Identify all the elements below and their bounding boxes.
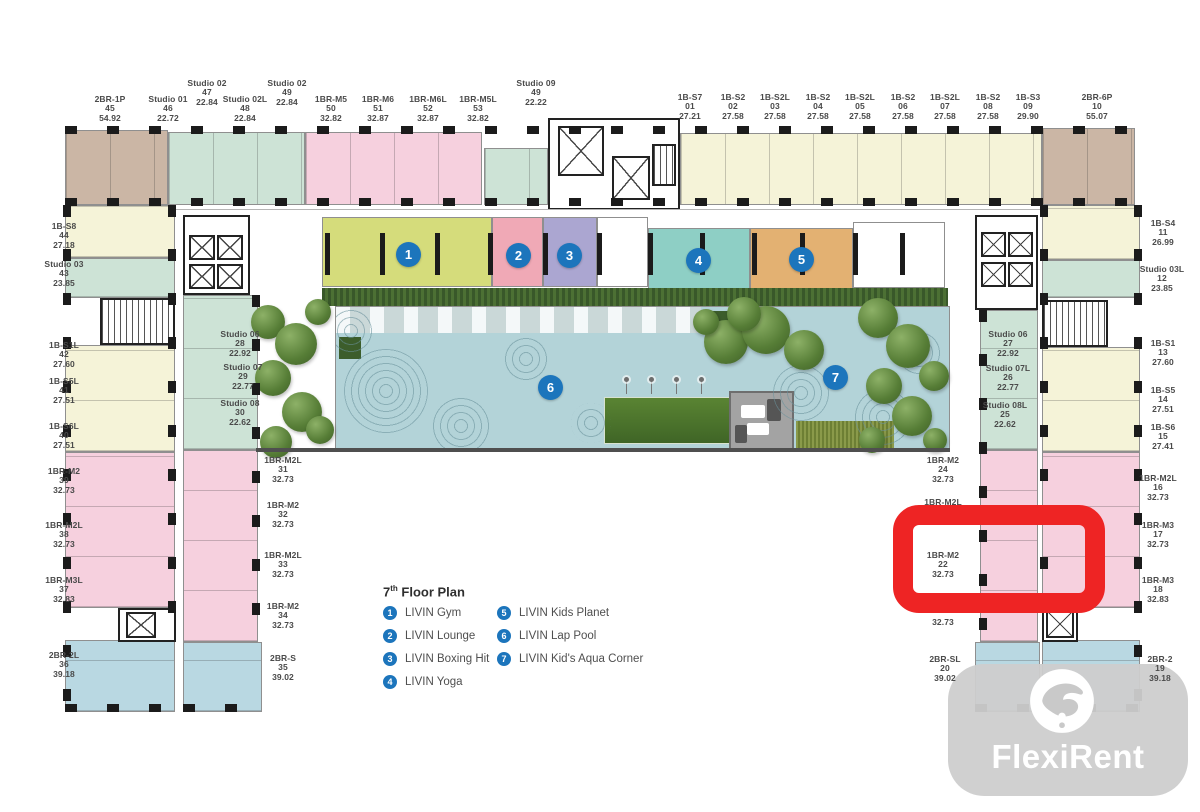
water-ripple bbox=[571, 403, 611, 443]
unit-label-49: Studio 02 49 22.84 bbox=[267, 79, 306, 107]
legend-label: LIVIN Kid's Aqua Corner bbox=[519, 653, 643, 665]
legend-label: LIVIN Lap Pool bbox=[519, 630, 596, 642]
lamp-post bbox=[626, 381, 627, 394]
legend-item-3: 3LIVIN Boxing Hit bbox=[383, 652, 489, 666]
unit-label-25: Studio 08L 25 22.62 bbox=[983, 401, 1027, 429]
lamp-post bbox=[701, 381, 702, 394]
unit-block-studio-09 bbox=[484, 148, 548, 205]
deck-sofa bbox=[735, 425, 747, 443]
unit-label-17: 1BR-M3 17 32.73 bbox=[1142, 521, 1174, 549]
legend-title-text: Floor Plan bbox=[398, 584, 465, 599]
unit-label-31: 1BR-M2L 31 32.73 bbox=[264, 456, 302, 484]
legend-marker-7: 7 bbox=[497, 652, 511, 666]
legend-label: LIVIN Gym bbox=[405, 607, 461, 619]
unit-block-1br-inner-left bbox=[183, 450, 258, 642]
column-row bbox=[65, 126, 1135, 134]
unit-label-49: Studio 09 49 22.22 bbox=[516, 79, 555, 107]
unit-block-2br-6p bbox=[1042, 128, 1135, 205]
unit-label-20: 2BR-SL 20 39.02 bbox=[929, 655, 960, 683]
legend-item-1: 1LIVIN Gym bbox=[383, 606, 461, 620]
unit-label-30: Studio 08 30 22.62 bbox=[220, 399, 259, 427]
unit-label-33: 1BR-M2L 33 32.73 bbox=[264, 551, 302, 579]
room-services bbox=[853, 222, 945, 288]
legend-item-5: 5LIVIN Kids Planet bbox=[497, 606, 609, 620]
unit-label-27: Studio 06 27 22.92 bbox=[988, 330, 1027, 358]
legend-label: LIVIN Lounge bbox=[405, 630, 475, 642]
column bbox=[597, 233, 602, 275]
unit-label-15: 1B-S6 15 27.41 bbox=[1151, 423, 1176, 451]
elevator-shaft bbox=[217, 235, 243, 260]
unit-label-29: Studio 07 29 22.77 bbox=[223, 363, 262, 391]
unit-label-04: 1B-S2 04 27.58 bbox=[806, 93, 831, 121]
flexirent-logo-icon bbox=[1029, 668, 1095, 734]
lamp-post bbox=[651, 381, 652, 394]
unit-label-43: Studio 03 43 23.85 bbox=[44, 260, 83, 288]
tree bbox=[784, 330, 824, 370]
unit-label-partial: 32.73 bbox=[932, 618, 954, 627]
unit-label-28: Studio 06 28 22.92 bbox=[220, 330, 259, 358]
unit-label-13: 1B-S1 13 27.60 bbox=[1151, 339, 1176, 367]
legend-marker-2: 2 bbox=[383, 629, 397, 643]
column bbox=[853, 233, 858, 275]
legend-label: LIVIN Kids Planet bbox=[519, 607, 609, 619]
unit-label-34: 1BR-M2 34 32.73 bbox=[267, 602, 299, 630]
unit-label-42: 1B-S1L 42 27.60 bbox=[49, 341, 79, 369]
lap-pool bbox=[335, 306, 950, 450]
unit-label-11: 1B-S4 11 26.99 bbox=[1151, 219, 1176, 247]
tree bbox=[260, 426, 292, 458]
legend-item-4: 4LIVIN Yoga bbox=[383, 675, 463, 689]
pool-deck-steps bbox=[336, 307, 701, 333]
unit-label-12: Studio 03L 12 23.85 bbox=[1140, 265, 1184, 293]
column bbox=[325, 233, 330, 275]
deck-sofa bbox=[741, 405, 765, 418]
unit-block-1bs-left bbox=[65, 345, 175, 452]
deck-table bbox=[747, 423, 769, 435]
unit-label-44: 1B-S8 44 27.18 bbox=[52, 222, 77, 250]
water-ripple bbox=[344, 349, 428, 433]
legend-marker-5: 5 bbox=[497, 606, 511, 620]
brand-name: FlexiRent bbox=[948, 738, 1188, 776]
elevator-shaft bbox=[189, 235, 215, 260]
amenity-marker-1: 1 bbox=[396, 242, 421, 267]
tree bbox=[693, 309, 719, 335]
unit-label-07: 1B-S2L 07 27.58 bbox=[930, 93, 960, 121]
amenity-marker-6: 6 bbox=[538, 375, 563, 400]
stairs-left-wing bbox=[100, 298, 175, 345]
legend-label: LIVIN Boxing Hit bbox=[405, 653, 489, 665]
elevator-shaft bbox=[1008, 232, 1033, 257]
amenity-marker-5: 5 bbox=[789, 247, 814, 272]
legend-marker-6: 6 bbox=[497, 629, 511, 643]
unit-label-38: 1BR-M2L 38 32.73 bbox=[45, 521, 83, 549]
legend-marker-3: 3 bbox=[383, 652, 397, 666]
tree bbox=[886, 324, 930, 368]
lamp bbox=[699, 377, 704, 382]
unit-block-1b-s8 bbox=[65, 205, 175, 258]
unit-block-1bs-top bbox=[680, 133, 1042, 205]
lawn bbox=[604, 397, 730, 444]
elevator-shaft bbox=[612, 156, 650, 200]
highlight-box-unit-22 bbox=[893, 505, 1105, 613]
unit-label-32: 1BR-M2 32 32.73 bbox=[267, 501, 299, 529]
lamp-post bbox=[676, 381, 677, 394]
water-ripple bbox=[335, 309, 373, 353]
elevator-shaft bbox=[981, 262, 1006, 287]
legend-item-2: 2LIVIN Lounge bbox=[383, 629, 475, 643]
unit-label-41: 1B-S5L 41 27.51 bbox=[49, 377, 79, 405]
watermark-badge: FlexiRent bbox=[948, 664, 1188, 796]
lamp bbox=[624, 377, 629, 382]
unit-label-19: 2BR-2 19 39.18 bbox=[1147, 655, 1172, 683]
legend-marker-1: 1 bbox=[383, 606, 397, 620]
tree bbox=[866, 368, 902, 404]
elevator-shaft bbox=[189, 264, 215, 289]
elevator-shaft bbox=[981, 232, 1006, 257]
column bbox=[900, 233, 905, 275]
unit-label-05: 1B-S2L 05 27.58 bbox=[845, 93, 875, 121]
elevator-shaft bbox=[1008, 262, 1033, 287]
unit-label-02: 1B-S2 02 27.58 bbox=[721, 93, 746, 121]
floor-plan: 1234567 2BR-1P 45 54.92Studio 01 46 22.7… bbox=[0, 0, 1200, 812]
unit-label-46: Studio 01 46 22.72 bbox=[148, 95, 187, 123]
column-row bbox=[65, 704, 175, 712]
unit-label-37: 1BR-M3L 37 32.83 bbox=[45, 576, 83, 604]
elevator-shaft bbox=[126, 612, 156, 638]
column bbox=[488, 233, 493, 275]
legend-label: LIVIN Yoga bbox=[405, 676, 463, 688]
unit-label-01: 1B-S7 01 27.21 bbox=[678, 93, 703, 121]
corridor-line bbox=[176, 209, 1040, 210]
unit-block-1bs-right bbox=[1042, 347, 1140, 452]
hedge-strip bbox=[322, 288, 948, 306]
unit-label-08: 1B-S2 08 27.58 bbox=[976, 93, 1001, 121]
column bbox=[752, 233, 757, 275]
unit-label-06: 1B-S2 06 27.58 bbox=[891, 93, 916, 121]
unit-label-40: 1B-S6L 40 27.51 bbox=[49, 422, 79, 450]
unit-label-51: 1BR-M6 51 32.87 bbox=[362, 95, 394, 123]
unit-block-1b-s4 bbox=[1042, 205, 1140, 260]
unit-block-2br-2l bbox=[65, 640, 175, 712]
unit-label-14: 1B-S5 14 27.51 bbox=[1151, 386, 1176, 414]
lamp bbox=[649, 377, 654, 382]
unit-label-35: 2BR-S 35 39.02 bbox=[270, 654, 296, 682]
unit-block-2br-s bbox=[183, 642, 262, 712]
tree bbox=[275, 323, 317, 365]
unit-label-50: 1BR-M5 50 32.82 bbox=[315, 95, 347, 123]
legend-title: 7th Floor Plan bbox=[383, 584, 465, 599]
tree bbox=[306, 416, 334, 444]
unit-label-24: 1BR-M2 24 32.73 bbox=[927, 456, 959, 484]
unit-block-studios-top-left bbox=[168, 132, 305, 205]
unit-label-16: 1BR-M2L 16 32.73 bbox=[1139, 474, 1177, 502]
lamp bbox=[674, 377, 679, 382]
legend-title-sup: th bbox=[390, 584, 398, 593]
stairs-right-wing bbox=[1042, 300, 1108, 347]
unit-label-53: 1BR-M5L 53 32.82 bbox=[459, 95, 497, 123]
water-ripple bbox=[773, 365, 829, 421]
unit-label-48: Studio 02L 48 22.84 bbox=[223, 95, 267, 123]
amenity-marker-3: 3 bbox=[557, 243, 582, 268]
legend-item-6: 6LIVIN Lap Pool bbox=[497, 629, 596, 643]
unit-label-39: 1BR-M2 39 32.73 bbox=[48, 467, 80, 495]
courtyard-edge bbox=[256, 448, 950, 452]
unit-label-09: 1B-S3 09 29.90 bbox=[1016, 93, 1041, 121]
unit-block-studio-03l bbox=[1042, 260, 1140, 298]
column bbox=[380, 233, 385, 275]
column bbox=[543, 233, 548, 275]
tree bbox=[305, 299, 331, 325]
column-row bbox=[183, 704, 262, 712]
unit-block-2br-1p bbox=[65, 130, 168, 205]
elevator-shaft bbox=[217, 264, 243, 289]
water-ripple bbox=[431, 396, 491, 450]
amenity-marker-4: 4 bbox=[686, 248, 711, 273]
unit-label-10: 2BR-6P 10 55.07 bbox=[1082, 93, 1113, 121]
amenity-marker-2: 2 bbox=[506, 243, 531, 268]
unit-label-36: 2BR-2L 36 39.18 bbox=[49, 651, 79, 679]
unit-block-1br-m-top bbox=[305, 132, 482, 205]
unit-label-03: 1B-S2L 03 27.58 bbox=[760, 93, 790, 121]
stairs-top bbox=[652, 144, 676, 186]
unit-label-47: Studio 02 47 22.84 bbox=[187, 79, 226, 107]
column-row bbox=[65, 198, 1135, 206]
tree bbox=[727, 297, 761, 331]
tree bbox=[919, 361, 949, 391]
unit-label-52: 1BR-M6L 52 32.87 bbox=[409, 95, 447, 123]
unit-label-45: 2BR-1P 45 54.92 bbox=[95, 95, 126, 123]
column bbox=[648, 233, 653, 275]
column-row bbox=[168, 205, 176, 640]
unit-label-26: Studio 07L 26 22.77 bbox=[986, 364, 1030, 392]
tree bbox=[892, 396, 932, 436]
legend-marker-4: 4 bbox=[383, 675, 397, 689]
column bbox=[435, 233, 440, 275]
unit-label-18: 1BR-M3 18 32.83 bbox=[1142, 576, 1174, 604]
elevator-shaft bbox=[1046, 610, 1074, 638]
amenity-marker-7: 7 bbox=[823, 365, 848, 390]
legend-item-7: 7LIVIN Kid's Aqua Corner bbox=[497, 652, 643, 666]
room-corridor bbox=[597, 217, 648, 287]
